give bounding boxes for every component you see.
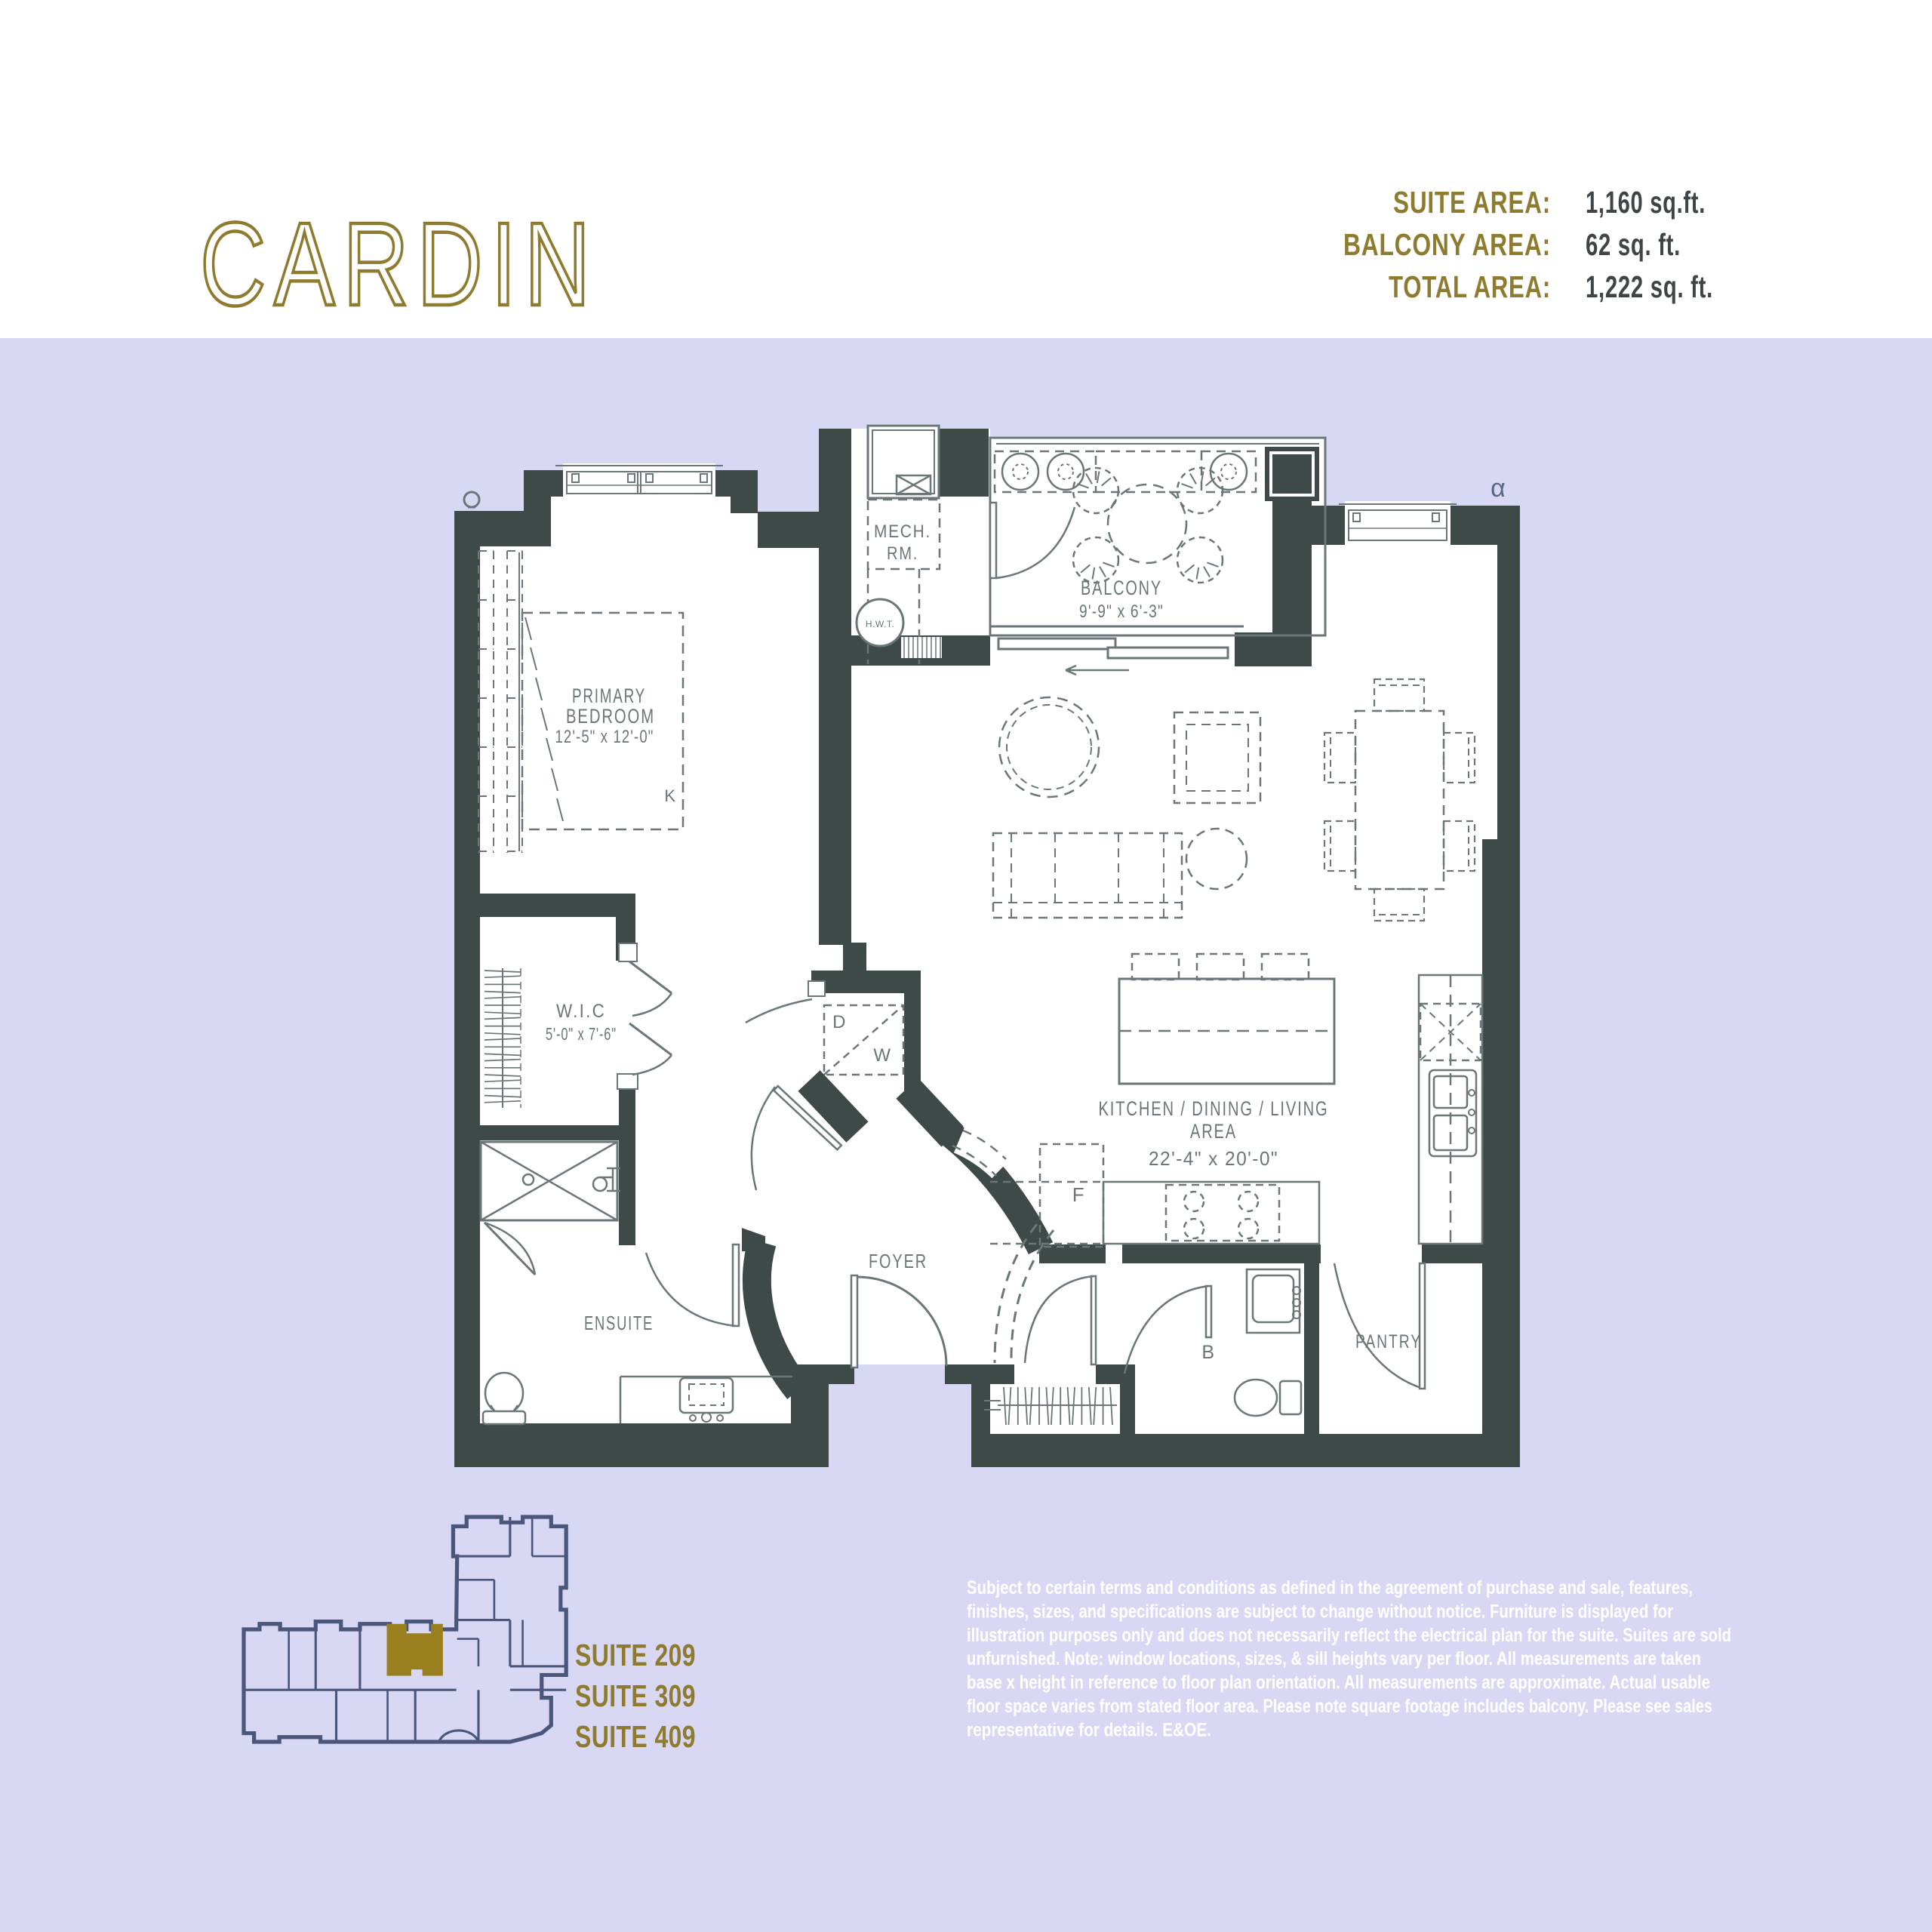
svg-text:RM.: RM.	[887, 543, 918, 564]
svg-text:BALCONY AREA:: BALCONY AREA:	[1343, 227, 1551, 262]
svg-text:KITCHEN / DINING / LIVING: KITCHEN / DINING / LIVING	[1099, 1097, 1329, 1120]
svg-text:FOYER: FOYER	[869, 1250, 928, 1272]
svg-text:BALCONY: BALCONY	[1081, 577, 1162, 599]
svg-text:α: α	[1491, 474, 1506, 503]
svg-text:D: D	[832, 1012, 848, 1032]
svg-text:SUITE 409: SUITE 409	[575, 1719, 696, 1754]
svg-text:1,222 sq. ft.: 1,222 sq. ft.	[1586, 269, 1713, 304]
svg-text:F: F	[1072, 1183, 1086, 1206]
svg-text:PRIMARY: PRIMARY	[572, 685, 646, 707]
svg-text:unfurnished. Note: window loca: unfurnished. Note: window locations, siz…	[967, 1648, 1701, 1669]
svg-text:9'-9" x 6'-3": 9'-9" x 6'-3"	[1079, 601, 1164, 622]
svg-text:5'-0" x 7'-6": 5'-0" x 7'-6"	[546, 1024, 617, 1044]
svg-text:TOTAL AREA:: TOTAL AREA:	[1389, 269, 1551, 304]
svg-text:W: W	[873, 1045, 892, 1066]
svg-text:CARDIN: CARDIN	[200, 198, 598, 331]
svg-text:W.I.C: W.I.C	[556, 1001, 606, 1022]
svg-text:ENSUITE: ENSUITE	[584, 1312, 654, 1334]
svg-text:62 sq. ft.: 62 sq. ft.	[1586, 227, 1681, 262]
svg-text:12'-5" x 12'-0": 12'-5" x 12'-0"	[555, 727, 654, 747]
svg-text:representative for details. E&: representative for details. E&OE.	[967, 1719, 1211, 1740]
svg-text:AREA: AREA	[1190, 1120, 1237, 1143]
svg-text:finishes, sizes, and specifica: finishes, sizes, and specifications are …	[967, 1601, 1673, 1622]
svg-text:illustration purposes only and: illustration purposes only and does not …	[967, 1625, 1731, 1646]
svg-text:H.W.T.: H.W.T.	[866, 619, 894, 629]
svg-text:base x height in reference to: base x height in reference to floor plan…	[967, 1672, 1710, 1694]
svg-text:floor space varies from stated: floor space varies from stated floor are…	[967, 1696, 1712, 1717]
svg-text:SUITE 209: SUITE 209	[575, 1638, 696, 1672]
svg-text:K: K	[664, 786, 677, 805]
svg-text:B: B	[1201, 1342, 1216, 1363]
svg-text:SUITE AREA:: SUITE AREA:	[1393, 185, 1551, 220]
svg-text:22'-4" x 20'-0": 22'-4" x 20'-0"	[1149, 1147, 1278, 1170]
svg-text:SUITE 309: SUITE 309	[575, 1678, 696, 1713]
svg-text:1,160 sq.ft.: 1,160 sq.ft.	[1586, 185, 1706, 220]
svg-text:PANTRY: PANTRY	[1355, 1331, 1422, 1352]
svg-text:BEDROOM: BEDROOM	[566, 705, 655, 728]
svg-text:MECH.: MECH.	[874, 521, 931, 542]
svg-text:Subject to certain terms and c: Subject to certain terms and conditions …	[967, 1577, 1693, 1598]
